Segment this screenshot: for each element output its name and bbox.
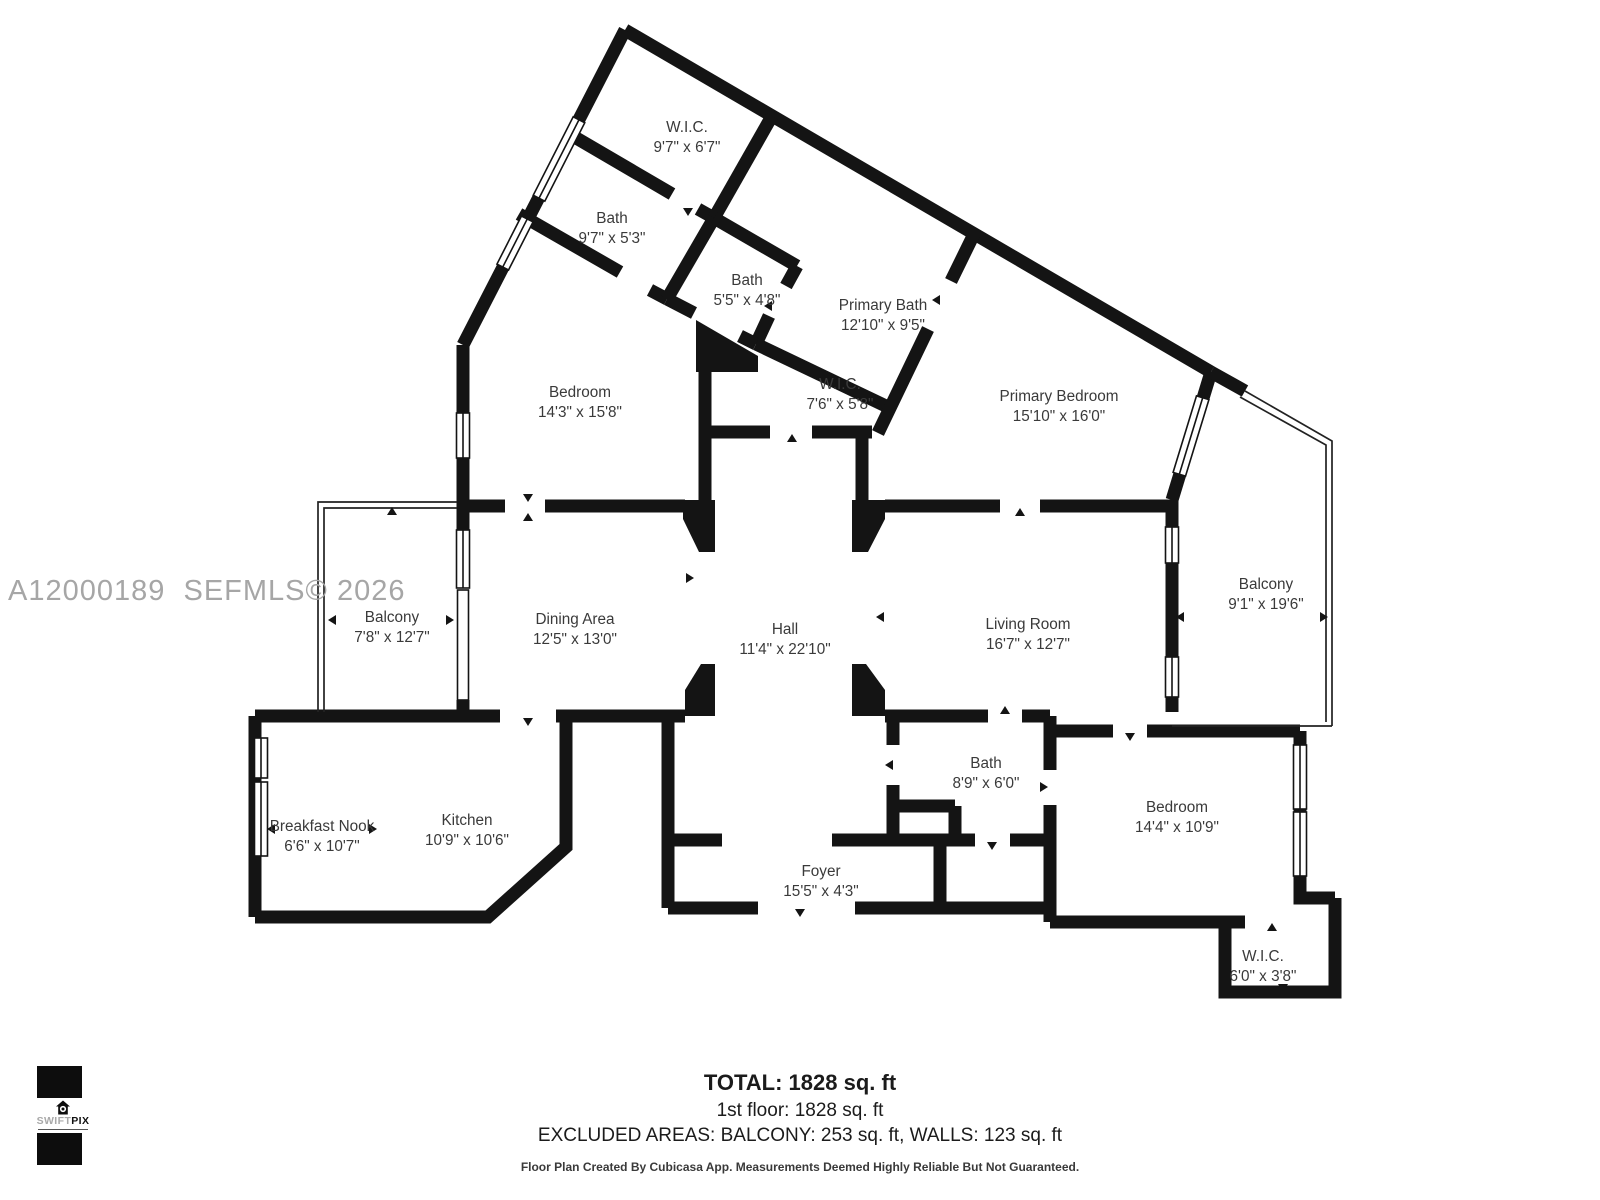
room-name: Living Room [985,615,1070,635]
room-dims: 5'5" x 4'8" [714,291,781,311]
room-name: Primary Bath [839,296,927,316]
room-name: Primary Bedroom [999,387,1118,407]
room-dims: 11'4" x 22'10" [739,640,830,660]
room-label-balcony-right: Balcony 9'1" x 19'6" [1228,575,1303,615]
room-name: Balcony [1228,575,1303,595]
room-name: Bath [579,209,646,229]
room-dims: 14'3" x 15'8" [538,403,622,423]
mls-watermark: A12000189 SEFMLS© 2026 [8,575,405,608]
room-name: W.I.C. [807,375,874,395]
room-dims: 16'7" x 12'7" [985,635,1070,655]
disclaimer-text: Floor Plan Created By Cubicasa App. Meas… [0,1160,1600,1174]
room-name: Hall [739,620,830,640]
room-name: Bedroom [1135,798,1219,818]
room-name: Foyer [783,862,858,882]
excluded-areas-text: EXCLUDED AREAS: BALCONY: 253 sq. ft, WAL… [0,1125,1600,1147]
floor-plan-page: W.I.C. 9'7" x 6'7" Bath 9'7" x 5'3" Bath… [0,0,1600,1200]
room-dims: 9'7" x 6'7" [654,138,721,158]
room-dims: 12'5" x 13'0" [533,630,617,650]
room-dims: 14'4" x 10'9" [1135,818,1219,838]
room-name: Bath [953,754,1020,774]
walls-thick [255,30,1335,992]
room-label-wic-mid: W.I.C. 7'6" x 5'8" [807,375,874,415]
room-label-primary-bedroom: Primary Bedroom 15'10" x 16'0" [999,387,1118,427]
room-dims: 9'7" x 5'3" [579,229,646,249]
room-dims: 9'1" x 19'6" [1228,595,1303,615]
room-dims: 10'9" x 10'6" [425,831,509,851]
room-name: Kitchen [425,811,509,831]
room-label-bedroom-left: Bedroom 14'3" x 15'8" [538,383,622,423]
room-name: Bedroom [538,383,622,403]
total-area-text: TOTAL: 1828 sq. ft [0,1070,1600,1096]
room-label-breakfast-nook: Breakfast Nook 6'6" x 10'7" [270,817,375,857]
room-label-balcony-left: Balcony 7'8" x 12'7" [354,608,429,648]
room-label-dining-area: Dining Area 12'5" x 13'0" [533,610,617,650]
room-label-bedroom-right: Bedroom 14'4" x 10'9" [1135,798,1219,838]
room-name: Bath [714,271,781,291]
room-dims: 8'9" x 6'0" [953,774,1020,794]
room-name: Dining Area [533,610,617,630]
first-floor-area-text: 1st floor: 1828 sq. ft [0,1100,1600,1122]
room-label-hall: Hall 11'4" x 22'10" [739,620,830,660]
room-dims: 7'6" x 5'8" [807,395,874,415]
room-label-wic-bottom: W.I.C. 6'0" x 3'8" [1230,947,1297,987]
area-summary: TOTAL: 1828 sq. ft 1st floor: 1828 sq. f… [0,1070,1600,1150]
room-name: W.I.C. [1230,947,1297,967]
room-label-bath-small: Bath 5'5" x 4'8" [714,271,781,311]
room-label-wic-top: W.I.C. 9'7" x 6'7" [654,118,721,158]
room-label-kitchen: Kitchen 10'9" x 10'6" [425,811,509,851]
room-dims: 6'0" x 3'8" [1230,967,1297,987]
room-dims: 12'10" x 9'5" [839,316,927,336]
room-name: Breakfast Nook [270,817,375,837]
room-dims: 6'6" x 10'7" [270,837,375,857]
room-name: Balcony [354,608,429,628]
room-dims: 7'8" x 12'7" [354,628,429,648]
room-label-bath-upper: Bath 9'7" x 5'3" [579,209,646,249]
room-label-bath-lower: Bath 8'9" x 6'0" [953,754,1020,794]
room-name: W.I.C. [654,118,721,138]
room-label-living-room: Living Room 16'7" x 12'7" [985,615,1070,655]
room-dims: 15'10" x 16'0" [999,407,1118,427]
room-label-primary-bath: Primary Bath 12'10" x 9'5" [839,296,927,336]
room-label-foyer: Foyer 15'5" x 4'3" [783,862,858,902]
windows [255,117,1307,876]
room-dims: 15'5" x 4'3" [783,882,858,902]
